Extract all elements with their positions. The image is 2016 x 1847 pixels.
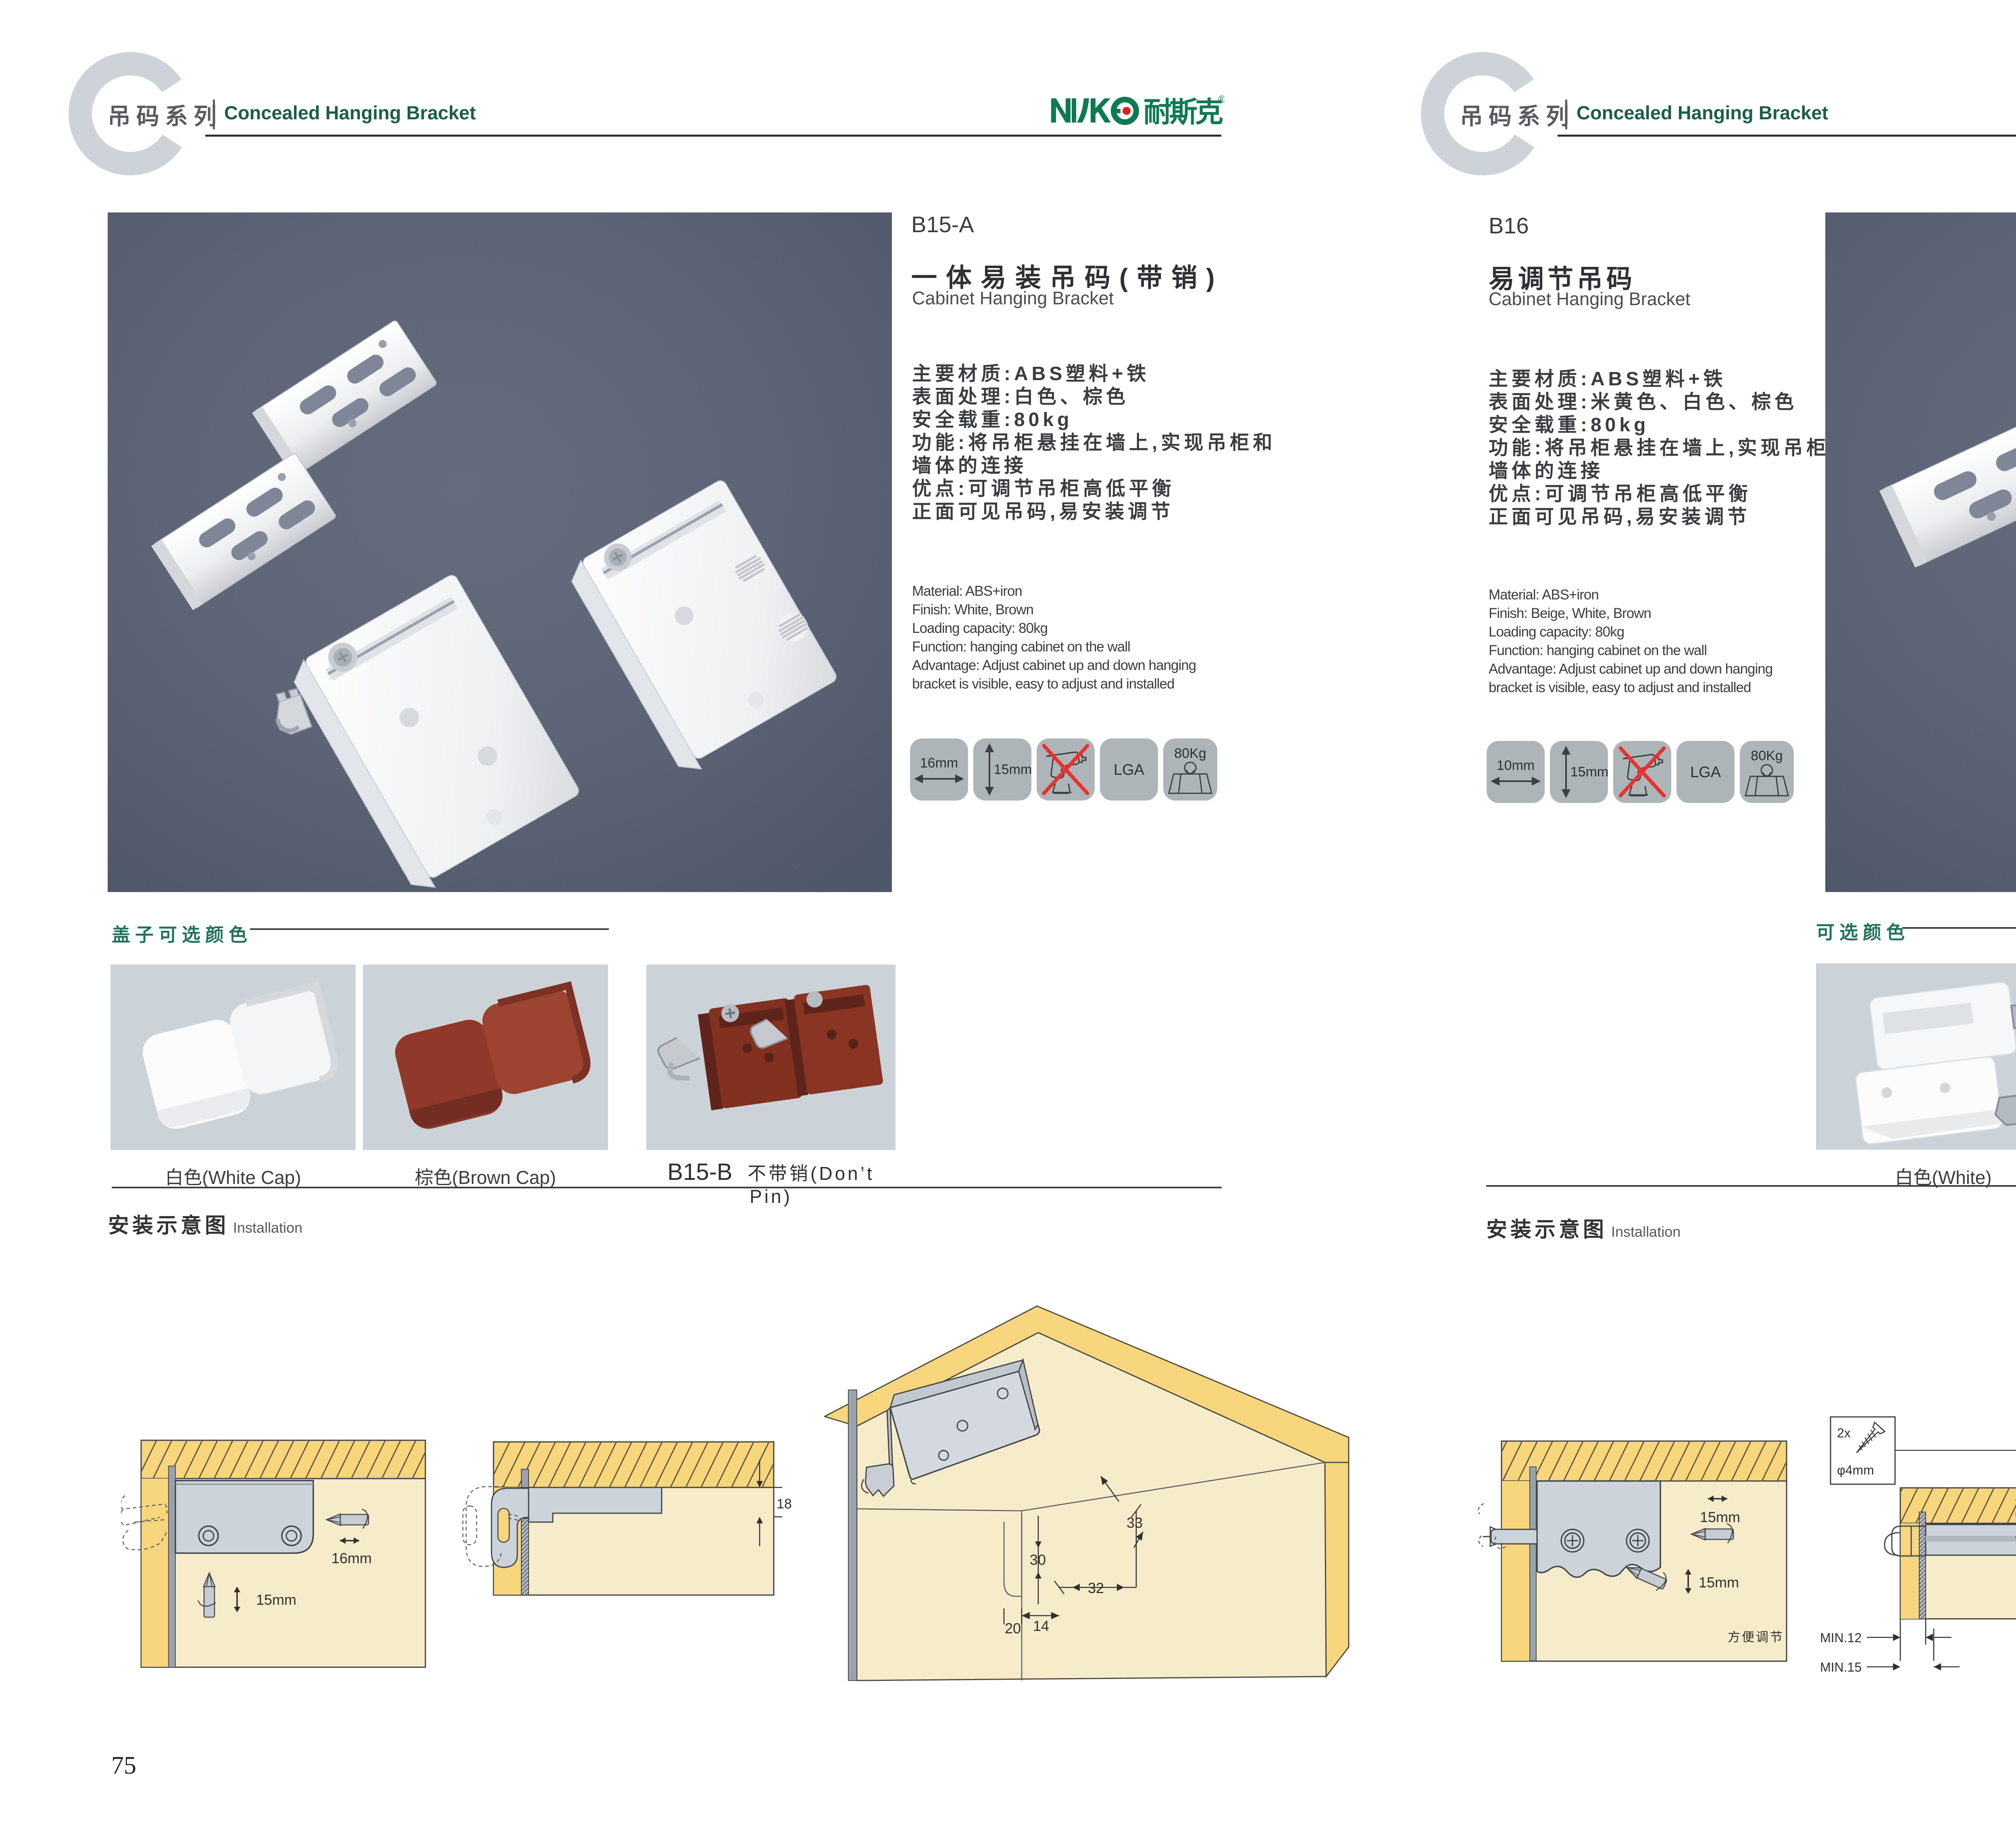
svg-text:15mm: 15mm bbox=[1699, 1574, 1739, 1591]
svg-text:14: 14 bbox=[1033, 1618, 1049, 1634]
svg-text:2x: 2x bbox=[1837, 1426, 1851, 1440]
svg-text:15mm: 15mm bbox=[256, 1591, 296, 1608]
svg-text:10mm: 10mm bbox=[1497, 758, 1535, 773]
svg-text:16mm: 16mm bbox=[331, 1550, 372, 1566]
svg-text:18: 18 bbox=[777, 1496, 792, 1512]
svg-text:MIN.12: MIN.12 bbox=[1820, 1631, 1862, 1645]
svg-text:15mm: 15mm bbox=[994, 762, 1032, 777]
svg-text:LGA: LGA bbox=[1690, 764, 1721, 781]
svg-text:32: 32 bbox=[1088, 1580, 1104, 1596]
svg-text:80Kg: 80Kg bbox=[1174, 746, 1206, 761]
svg-text:20: 20 bbox=[1005, 1620, 1021, 1637]
svg-text:30: 30 bbox=[1030, 1552, 1046, 1568]
svg-text:LGA: LGA bbox=[1114, 761, 1145, 778]
svg-text:方便调节: 方便调节 bbox=[1728, 1630, 1784, 1644]
svg-text:φ4mm: φ4mm bbox=[1837, 1463, 1874, 1477]
svg-text:耐斯克: 耐斯克 bbox=[1143, 96, 1223, 128]
svg-text:®: ® bbox=[1218, 94, 1225, 105]
svg-text:15mm: 15mm bbox=[1570, 764, 1608, 780]
svg-text:16mm: 16mm bbox=[920, 755, 958, 771]
svg-text:15mm: 15mm bbox=[1700, 1509, 1740, 1525]
svg-text:80Kg: 80Kg bbox=[1751, 748, 1783, 763]
svg-text:33: 33 bbox=[1127, 1514, 1143, 1531]
svg-text:MIN.15: MIN.15 bbox=[1820, 1660, 1862, 1674]
